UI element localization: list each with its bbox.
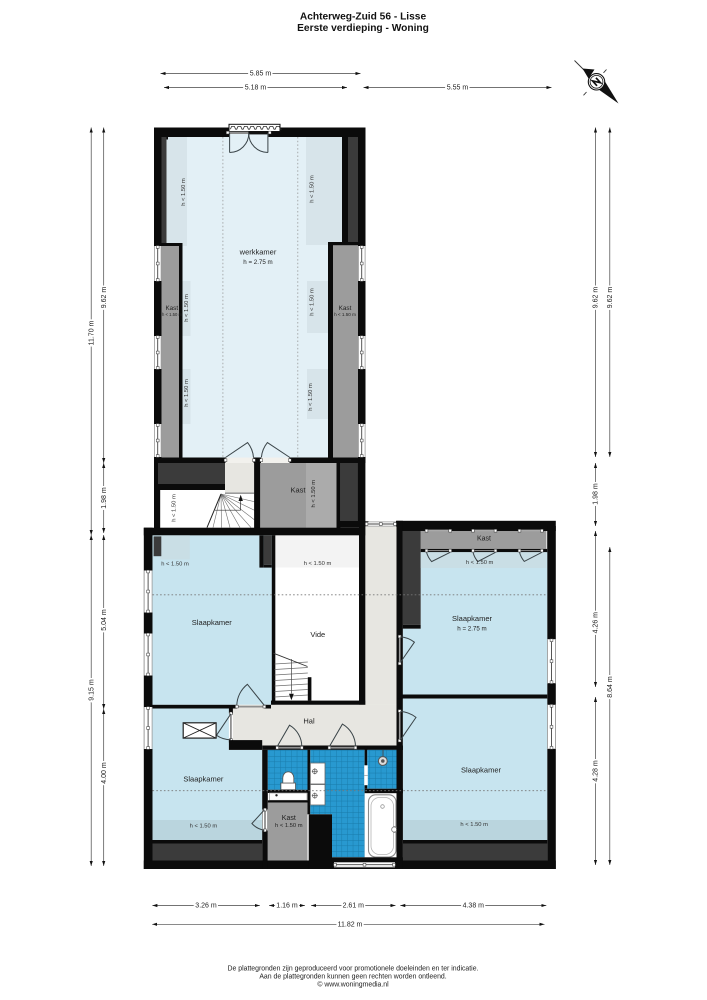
svg-text:h < 1.50 m: h < 1.50 m xyxy=(309,288,315,316)
svg-text:h < 1.50 m: h < 1.50 m xyxy=(171,494,177,522)
svg-text:Aan de plattegronden kunnen ge: Aan de plattegronden kunnen geen rechten… xyxy=(259,974,446,981)
svg-text:4.00 m: 4.00 m xyxy=(101,762,108,784)
svg-text:Kast: Kast xyxy=(477,535,491,542)
svg-text:9.15 m: 9.15 m xyxy=(88,679,95,701)
svg-text:11.70 m: 11.70 m xyxy=(88,320,95,345)
svg-text:h < 1.50 m: h < 1.50 m xyxy=(181,178,187,206)
svg-text:h = 2.75 m: h = 2.75 m xyxy=(457,626,486,633)
svg-text:3.26 m: 3.26 m xyxy=(195,903,217,910)
svg-text:Hal: Hal xyxy=(303,717,315,726)
svg-text:4.38 m: 4.38 m xyxy=(463,903,485,910)
svg-text:4.28 m: 4.28 m xyxy=(593,760,600,782)
svg-text:11.82 m: 11.82 m xyxy=(338,922,363,929)
svg-text:Achterweg-Zuid 56 - Lisse: Achterweg-Zuid 56 - Lisse xyxy=(300,12,427,23)
svg-text:h < 1.50 m: h < 1.50 m xyxy=(184,294,190,322)
svg-text:1.98 m: 1.98 m xyxy=(101,487,108,509)
svg-text:5.85 m: 5.85 m xyxy=(250,71,272,78)
svg-text:Kast: Kast xyxy=(282,815,296,822)
svg-text:Slaapkamer: Slaapkamer xyxy=(183,774,224,783)
svg-text:h < 1.50 m: h < 1.50 m xyxy=(460,822,488,828)
svg-text:Vide: Vide xyxy=(310,630,325,639)
svg-text:9.62 m: 9.62 m xyxy=(607,287,614,309)
svg-text:9.62 m: 9.62 m xyxy=(593,287,600,309)
svg-text:Slaapkamer: Slaapkamer xyxy=(192,618,233,627)
svg-text:5.04 m: 5.04 m xyxy=(101,609,108,631)
svg-text:4.26 m: 4.26 m xyxy=(593,612,600,634)
svg-text:1.16 m: 1.16 m xyxy=(276,903,298,910)
svg-text:h < 1.50 m: h < 1.50 m xyxy=(190,823,218,829)
svg-text:1.98 m: 1.98 m xyxy=(593,483,600,505)
svg-text:Slaapkamer: Slaapkamer xyxy=(452,614,493,623)
svg-text:Kast: Kast xyxy=(165,305,178,312)
svg-text:h < 1.50 m: h < 1.50 m xyxy=(161,561,189,567)
svg-text:Eerste verdieping - Woning: Eerste verdieping - Woning xyxy=(297,23,429,34)
svg-text:h < 1.50 m: h < 1.50 m xyxy=(275,823,303,829)
svg-text:h < 1.50 m: h < 1.50 m xyxy=(304,561,332,567)
svg-text:h < 1.50 m: h < 1.50 m xyxy=(162,312,182,317)
svg-text:2.61 m: 2.61 m xyxy=(343,903,365,910)
svg-text:h < 1.50 m: h < 1.50 m xyxy=(310,175,316,203)
svg-text:werkkamer: werkkamer xyxy=(239,248,277,257)
svg-text:Kast: Kast xyxy=(290,486,306,495)
svg-text:h < 1.50 m: h < 1.50 m xyxy=(334,312,356,317)
svg-text:5.55 m: 5.55 m xyxy=(447,85,469,92)
svg-text:h < 1.50 m: h < 1.50 m xyxy=(466,560,494,566)
svg-text:9.62 m: 9.62 m xyxy=(101,287,108,309)
svg-text:h < 1.50 m: h < 1.50 m xyxy=(308,383,314,411)
svg-text:h = 2.75 m: h = 2.75 m xyxy=(243,259,272,266)
svg-text:De plattegronden zijn geproduc: De plattegronden zijn geproduceerd voor … xyxy=(228,966,479,973)
svg-text:Kast: Kast xyxy=(339,305,352,312)
svg-text:h < 1.50 m: h < 1.50 m xyxy=(184,379,190,407)
svg-text:8.64 m: 8.64 m xyxy=(607,676,614,698)
svg-text:5.18 m: 5.18 m xyxy=(245,85,267,92)
svg-text:© www.woningmedia.nl: © www.woningmedia.nl xyxy=(317,981,389,989)
svg-text:Slaapkamer: Slaapkamer xyxy=(461,765,502,774)
svg-text:h < 1.50 m: h < 1.50 m xyxy=(311,480,317,508)
